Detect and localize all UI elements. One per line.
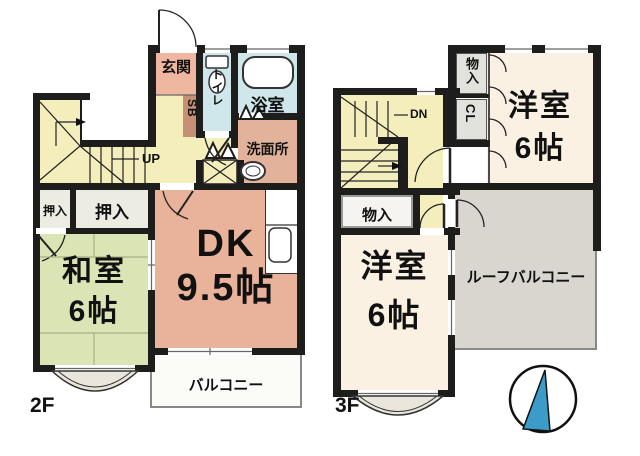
label-floor-2f: 2F bbox=[30, 394, 55, 418]
label-stairs-up: UP bbox=[142, 151, 160, 166]
label-roof-balcony: ルーフバルコニー bbox=[455, 266, 597, 287]
floor-plan-document: 玄関 SB トイレ 浴室 洗面所 UP 押入 押入 和室 6帖 DK 9.5帖 … bbox=[0, 0, 640, 456]
label-storage-mid: 物入 bbox=[341, 204, 413, 225]
label-washroom: 洗面所 bbox=[238, 139, 297, 159]
label-bathroom: 浴室 bbox=[238, 91, 297, 116]
label-toilet: トイレ bbox=[209, 68, 226, 128]
label-western-room-bottom: 洋室 6帖 bbox=[341, 242, 448, 340]
label-japanese-room: 和室 6帖 bbox=[40, 252, 148, 332]
room-2f-stairs bbox=[40, 100, 82, 183]
room-3f-hall-lower bbox=[420, 195, 443, 228]
label-balcony: バルコニー bbox=[150, 374, 302, 395]
bay-window-3f-icon bbox=[353, 396, 443, 415]
label-closet-right: 押入 bbox=[76, 198, 148, 223]
label-closet-left: 押入 bbox=[40, 202, 70, 219]
label-closet-cl: CL bbox=[463, 104, 478, 140]
label-entrance: 玄関 bbox=[156, 56, 196, 77]
label-western-room-top: 洋室 6帖 bbox=[487, 86, 593, 170]
label-shoe-box: SB bbox=[185, 99, 199, 137]
label-floor-3f: 3F bbox=[335, 394, 360, 418]
bay-window-2f-icon bbox=[52, 371, 138, 391]
room-2f-hall-toilet-front bbox=[196, 138, 231, 162]
label-stairs-down: DN bbox=[410, 107, 427, 121]
compass-icon bbox=[510, 366, 576, 432]
label-storage-top: 物入 bbox=[462, 57, 481, 97]
storage-cross-box-icon bbox=[203, 160, 237, 184]
label-dining-kitchen: DK 9.5帖 bbox=[155, 222, 297, 310]
